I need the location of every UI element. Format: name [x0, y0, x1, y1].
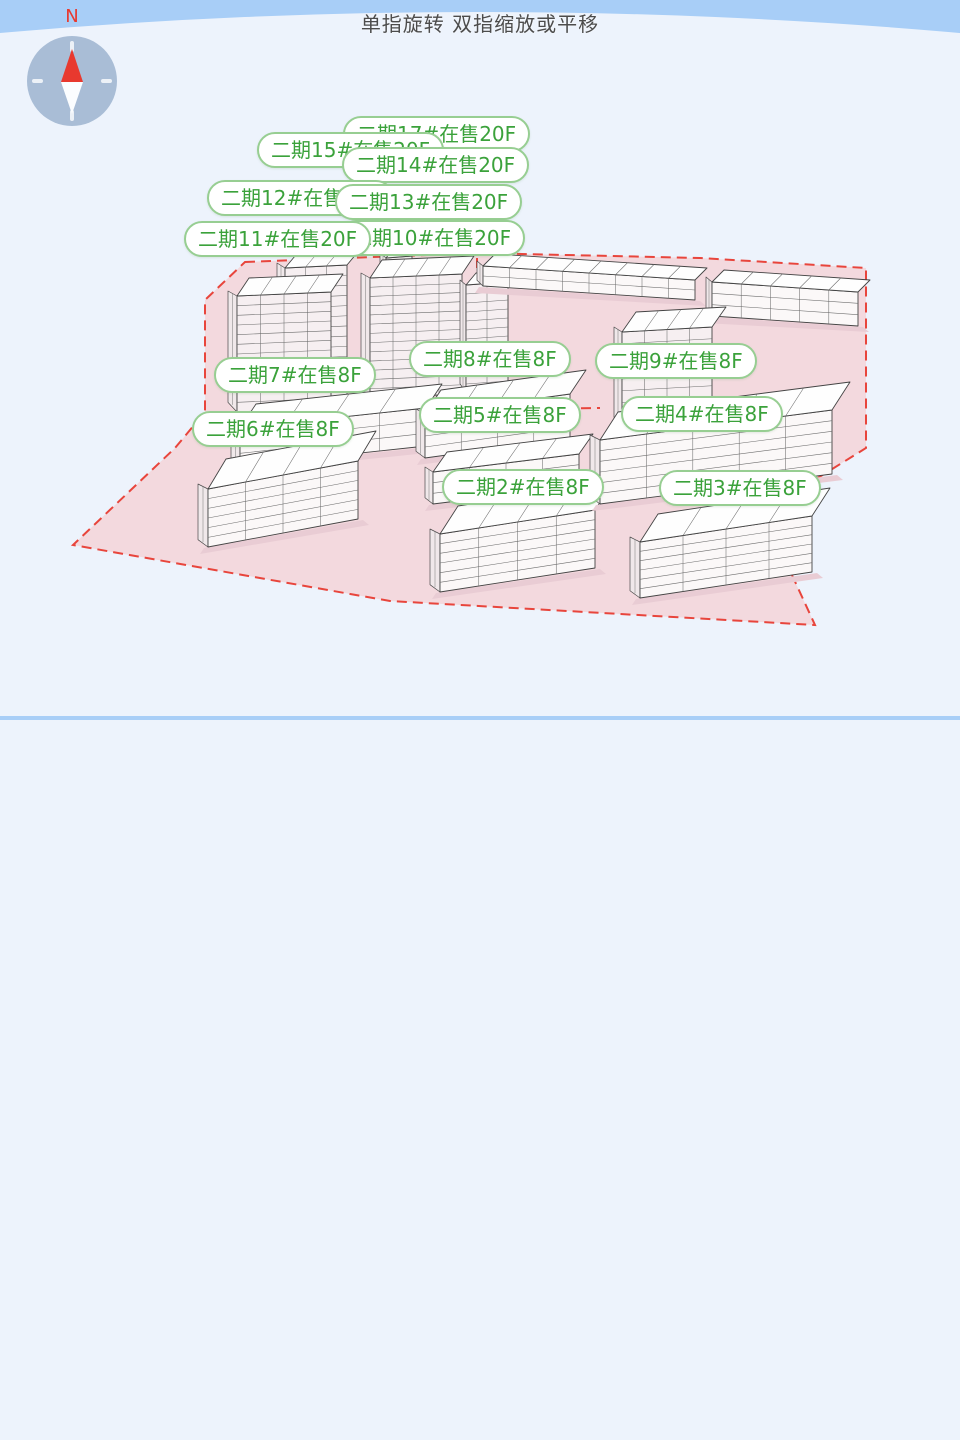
building-label-14[interactable]: 二期14#在售20F: [342, 147, 529, 183]
building-label-4[interactable]: 二期4#在售8F: [621, 396, 783, 432]
building-label-8[interactable]: 二期8#在售8F: [409, 341, 571, 377]
gesture-hint: 单指旋转 双指缩放或平移: [0, 8, 960, 37]
compass-tick-west: [32, 79, 43, 83]
compass-needle-tail-icon: [61, 82, 83, 114]
building-label-13[interactable]: 二期13#在售20F: [335, 184, 522, 220]
building-label-2[interactable]: 二期2#在售8F: [442, 469, 604, 505]
north-label: N: [36, 6, 108, 27]
compass-tick-east: [101, 79, 112, 83]
building-label-11[interactable]: 二期11#在售20F: [184, 221, 371, 257]
building-label-3[interactable]: 二期3#在售8F: [659, 470, 821, 506]
building-label-6[interactable]: 二期6#在售8F: [192, 411, 354, 447]
building-label-7[interactable]: 二期7#在售8F: [214, 357, 376, 393]
compass-needle-icon: [61, 49, 83, 82]
compass[interactable]: [27, 36, 117, 126]
building-label-9[interactable]: 二期9#在售8F: [595, 343, 757, 379]
building-label-5[interactable]: 二期5#在售8F: [419, 397, 581, 433]
